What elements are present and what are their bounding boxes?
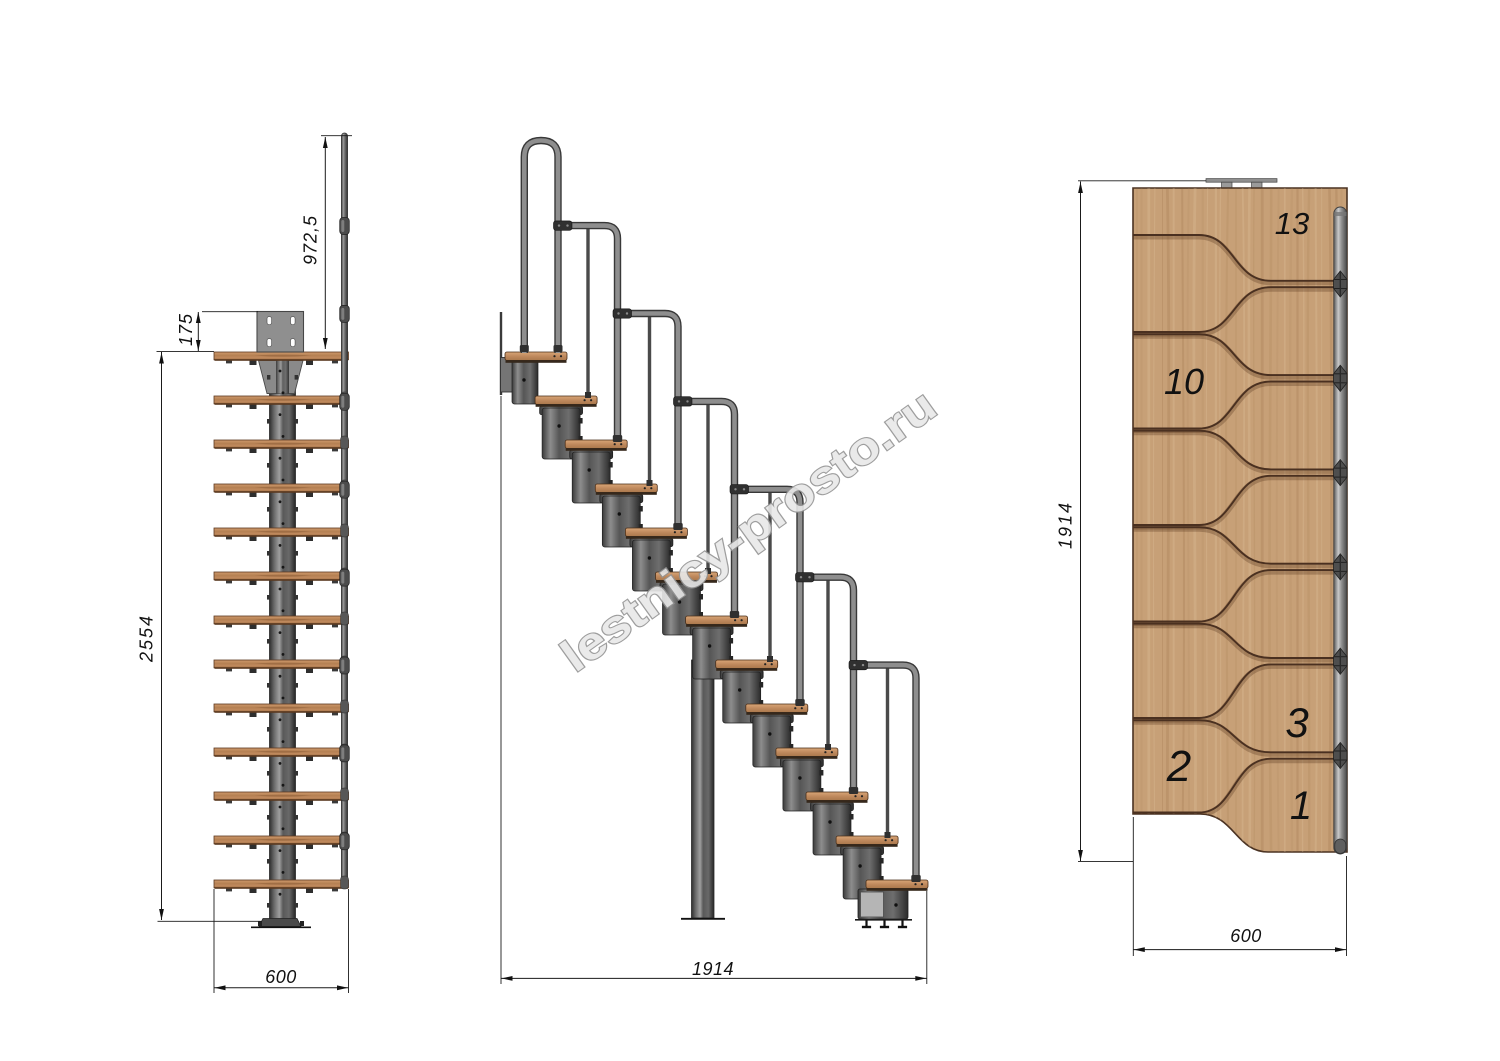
svg-text:10: 10: [1164, 361, 1204, 402]
svg-text:13: 13: [1275, 206, 1309, 241]
svg-text:175: 175: [176, 313, 196, 346]
svg-text:3: 3: [1285, 699, 1308, 746]
svg-text:2554: 2554: [137, 614, 157, 663]
svg-text:1: 1: [1290, 784, 1312, 828]
svg-text:1914: 1914: [1056, 501, 1076, 549]
svg-text:972,5: 972,5: [301, 215, 321, 265]
svg-text:2: 2: [1166, 742, 1191, 791]
svg-text:600: 600: [1230, 926, 1262, 946]
svg-text:600: 600: [265, 967, 297, 987]
svg-text:1914: 1914: [692, 959, 734, 979]
